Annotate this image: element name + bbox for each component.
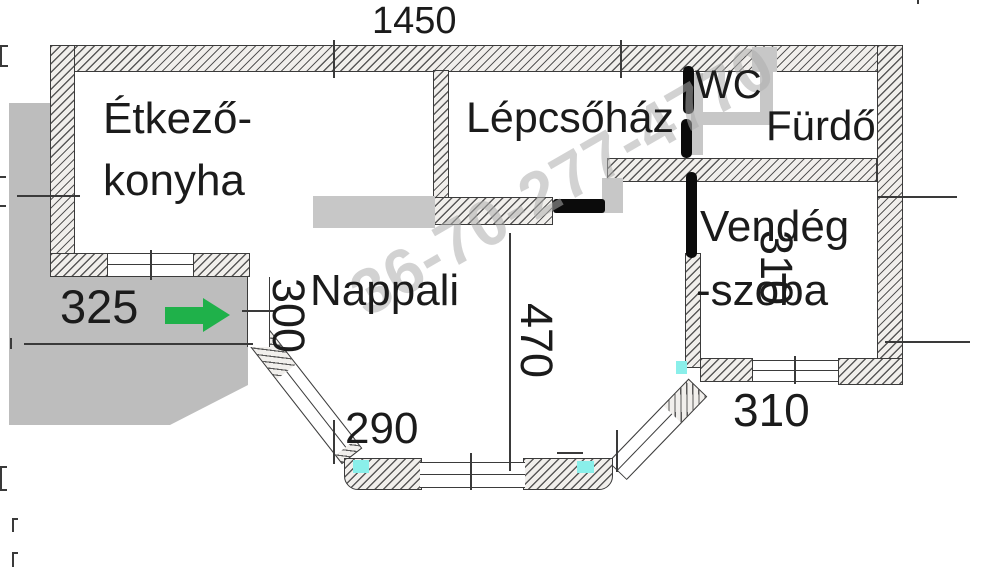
window-guest-mullion [794, 356, 796, 384]
dim-text-300: 300 [265, 278, 312, 353]
wall-right [877, 45, 903, 385]
dim-line-right-upper [877, 196, 957, 198]
wall-kitchen-bottom-right [193, 253, 250, 277]
label-kitchen-line1: Étkező- [103, 96, 252, 142]
dim-text-325: 325 [60, 282, 138, 331]
dim-text-470: 470 [513, 303, 560, 378]
window-bay-left [276, 364, 356, 456]
wall-guest-bottom-left [700, 358, 753, 382]
dim-line-325 [24, 343, 253, 345]
dim-tick-bay-left [333, 420, 335, 464]
edge-mark-2 [0, 205, 6, 207]
edge-mark-1 [0, 176, 6, 178]
entrance-arrow-head [203, 298, 230, 332]
dim-line-right-lower [885, 341, 970, 343]
dim-tick-top-left [333, 40, 335, 78]
wall-bay-diagonal-right [608, 379, 707, 481]
sill-cyan-guest [676, 361, 687, 374]
wall-left [50, 45, 75, 277]
dim-tick-bay-right [616, 430, 618, 472]
sill-cyan-right [577, 461, 594, 473]
window-bay-right [609, 405, 682, 479]
entrance-arrow-icon [165, 296, 230, 330]
entrance-arrow-body [165, 307, 203, 324]
dim-tick-top-right [620, 40, 622, 78]
edge-hook-2 [12, 552, 18, 567]
sill-cyan-left [353, 460, 369, 473]
wall-guest-bottom-right [838, 358, 903, 385]
guest-door-bar [686, 172, 697, 258]
wall-kitchen-bottom-left [50, 253, 108, 277]
edge-mark-top-right [917, 0, 923, 4]
label-living: Nappali [310, 268, 459, 314]
label-kitchen-line2: konyha [103, 158, 245, 204]
label-wc: WC [695, 64, 762, 106]
window-bay-bottom-mullion [470, 453, 472, 490]
dim-text-1450: 1450 [372, 2, 457, 42]
edge-bracket-top [0, 45, 8, 67]
label-bathroom: Fürdő [766, 104, 876, 148]
dim-text-290: 290 [345, 406, 418, 452]
wall-staircase-left [433, 70, 449, 200]
edge-hook-1 [12, 518, 18, 532]
dim-text-310-vertical: 310 [753, 230, 800, 305]
dim-line-left-upper [17, 195, 80, 197]
wall-bay-corner-right [523, 458, 613, 490]
dim-text-310-horizontal: 310 [733, 386, 810, 434]
sill-line-detail [557, 452, 583, 454]
window-kitchen-mullion [150, 250, 152, 280]
edge-bracket-bottom [0, 466, 7, 491]
label-staircase: Lépcsőház [466, 96, 674, 141]
dim-tick-325-end [10, 338, 12, 349]
floor-plan: 36-70-277-4770 Étkező- konyha Lépcsőház … [0, 0, 1000, 567]
